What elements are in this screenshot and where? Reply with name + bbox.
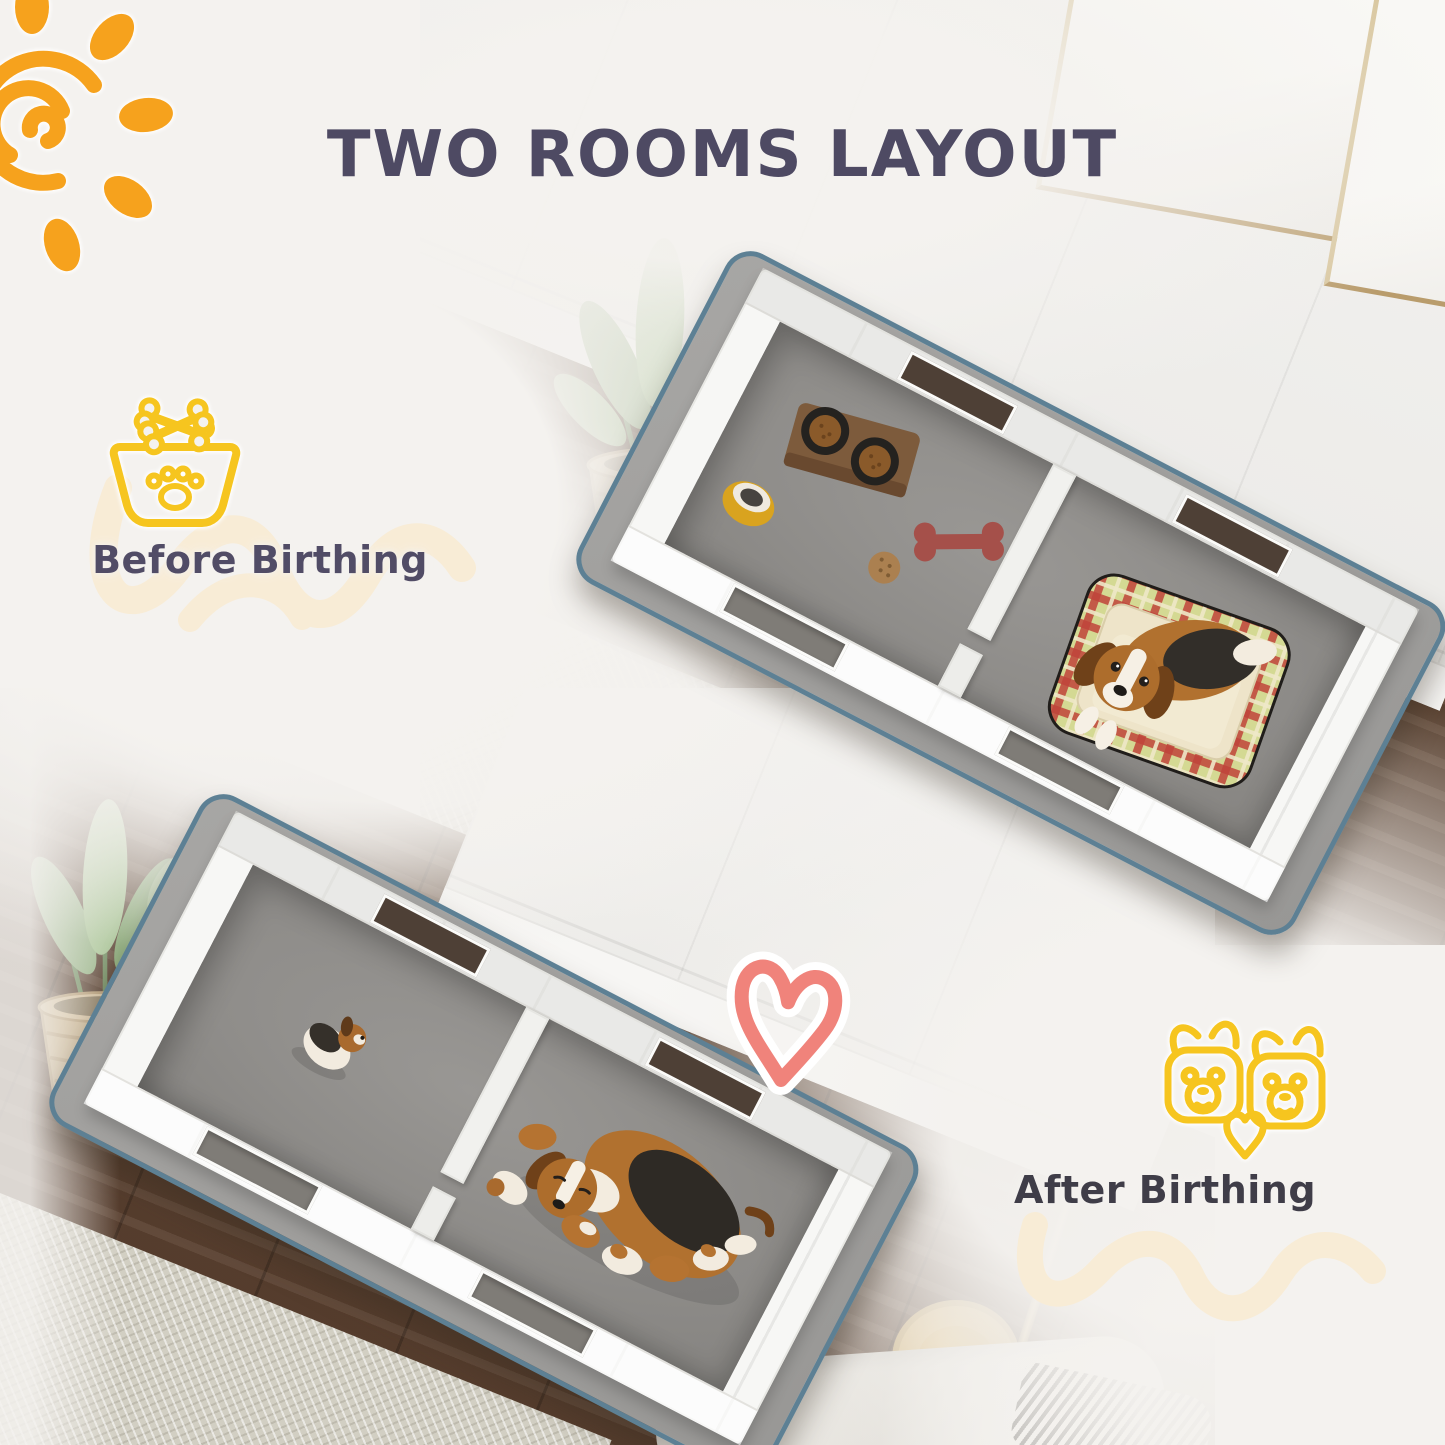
cream-squiggle-decoration [1005, 1195, 1405, 1325]
paw-print [149, 469, 202, 509]
marketing-graphic: Before Birthing After Birthing TWO ROOMS… [0, 0, 1445, 1445]
dog-bowl-bones-icon [90, 385, 260, 540]
after-birthing-label: After Birthing [955, 1168, 1375, 1212]
before-birthing-label: Before Birthing [40, 538, 480, 582]
page-title: TWO ROOMS LAYOUT [0, 118, 1445, 192]
heart-doodle-icon [702, 921, 869, 1106]
two-dogs-heart-icon [1150, 1012, 1340, 1162]
